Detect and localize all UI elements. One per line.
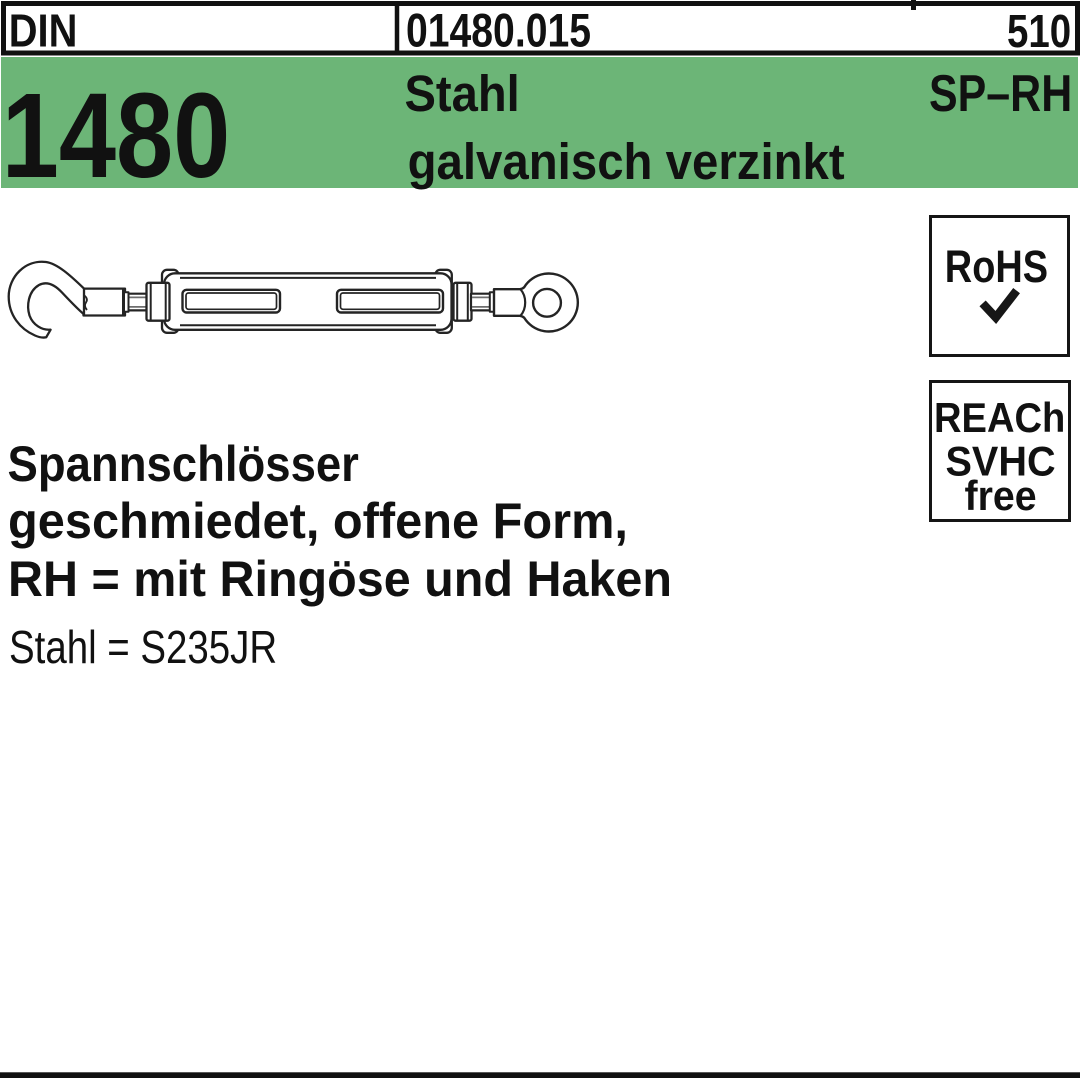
svg-text:Stahl = S235JR: Stahl = S235JR [9, 622, 277, 673]
svg-text:free: free [965, 472, 1037, 519]
svg-text:RH = mit Ringöse und Haken: RH = mit Ringöse und Haken [8, 551, 672, 607]
svg-text:DIN: DIN [9, 6, 78, 57]
svg-text:REACh: REACh [934, 395, 1065, 441]
svg-text:01480.015: 01480.015 [406, 5, 591, 57]
svg-text:Spannschlösser: Spannschlösser [8, 436, 359, 493]
svg-text:Stahl: Stahl [405, 66, 520, 122]
svg-text:1480: 1480 [2, 67, 231, 203]
svg-text:510: 510 [1007, 6, 1071, 57]
svg-text:RoHS: RoHS [945, 241, 1048, 292]
svg-text:galvanisch verzinkt: galvanisch verzinkt [408, 133, 845, 190]
svg-text:SP–RH: SP–RH [929, 65, 1072, 123]
svg-text:geschmiedet, offene Form,: geschmiedet, offene Form, [8, 492, 628, 549]
